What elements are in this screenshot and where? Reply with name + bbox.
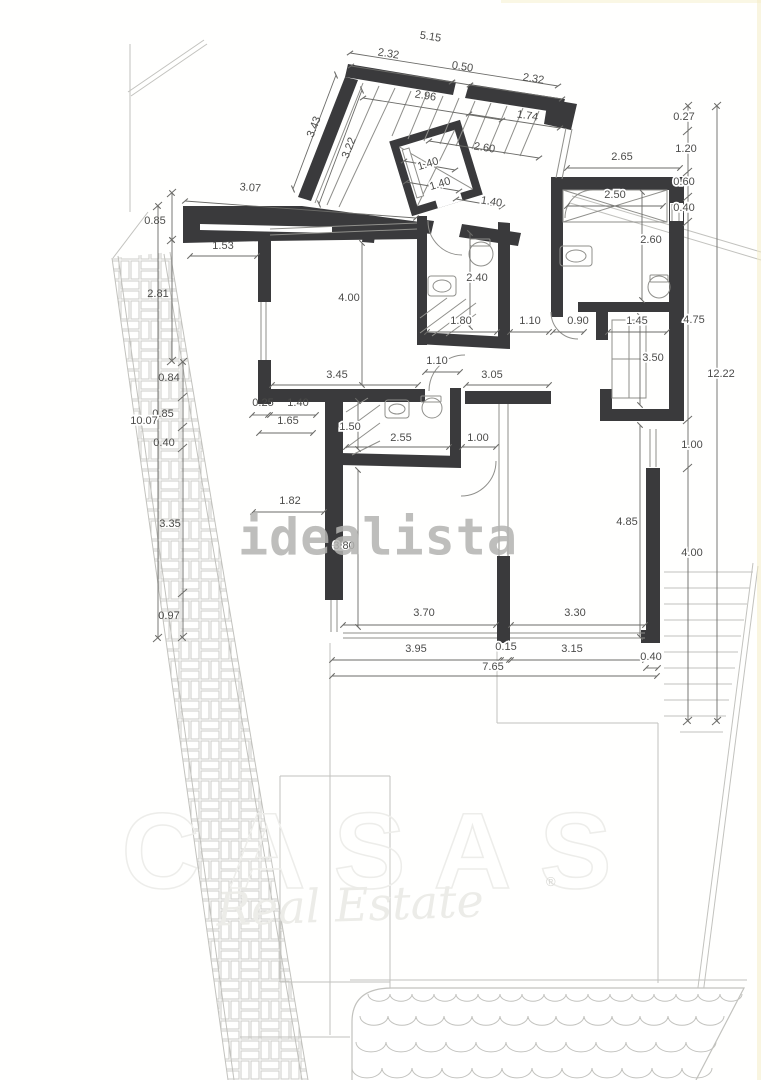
dim-label: 2.60 <box>473 140 496 155</box>
wall <box>450 388 461 462</box>
wall <box>551 190 563 317</box>
dim-label: 5.15 <box>419 29 442 44</box>
dim-label: 10.07 <box>130 415 158 427</box>
dim-label: 2.50 <box>604 189 625 201</box>
page-edge-tint <box>757 0 761 1080</box>
dim-label: 2.55 <box>390 432 411 444</box>
dim-label: 1.40 <box>480 194 503 209</box>
dim-label: 3.43 <box>305 115 324 139</box>
fixture <box>428 276 456 296</box>
chain-tick <box>683 416 692 424</box>
floor-plan-page: 5.152.320.502.322.961.742.603.433.221.40… <box>0 0 761 1080</box>
wall <box>465 391 551 404</box>
site-line <box>131 44 207 96</box>
wall <box>641 468 660 643</box>
dim-label: 2.32 <box>522 71 545 86</box>
chain-tick <box>683 717 692 725</box>
wall <box>498 222 510 340</box>
dim-label: 0.90 <box>567 315 588 327</box>
dim-label: 0.97 <box>158 610 179 622</box>
detail-line <box>562 129 572 179</box>
dim-label: 0.25 <box>252 397 273 409</box>
wall <box>578 302 669 312</box>
chain-tick <box>683 464 692 472</box>
sink-basin <box>433 280 451 292</box>
page-edge-tint-top <box>501 0 761 3</box>
idealista-watermark: idealista <box>238 507 518 566</box>
sink-basin <box>389 404 405 414</box>
dim-label: 2.65 <box>611 151 632 163</box>
dim-label: 1.10 <box>519 315 540 327</box>
dim-label: 0.84 <box>158 372 179 384</box>
chain-tick <box>683 218 692 226</box>
dim-label: 1.80 <box>450 315 471 327</box>
dim-label: 0.60 <box>673 176 694 188</box>
chain-tick <box>712 102 721 110</box>
dim-label: 3.22 <box>340 136 359 160</box>
dim-label: 0.27 <box>673 111 694 123</box>
wall <box>417 332 510 349</box>
dim-label: 1.00 <box>681 439 702 451</box>
chain-tick <box>683 127 692 135</box>
dim-label: 3.70 <box>413 607 434 619</box>
dim-label: 1.10 <box>426 355 447 367</box>
dim-label: 7.65 <box>482 661 503 673</box>
dim-label: 2.32 <box>377 46 400 61</box>
toilet <box>648 276 670 298</box>
wall <box>596 312 608 340</box>
chain-tick <box>683 102 692 110</box>
dim-label: 3.07 <box>239 181 261 195</box>
dim-label: 1.53 <box>212 240 233 252</box>
dim-label: 2.60 <box>640 234 661 246</box>
dim-label: 4.75 <box>683 314 704 326</box>
wall <box>544 99 577 130</box>
wall <box>417 216 427 345</box>
chain-tick <box>712 717 721 725</box>
dim-label: 2.40 <box>466 272 487 284</box>
dim-label: 3.50 <box>642 352 663 364</box>
dim-label: 4.85 <box>616 516 637 528</box>
dim-label: 4.00 <box>681 547 702 559</box>
detail-line <box>392 91 411 136</box>
dim-label: 0.40 <box>153 437 174 449</box>
chain-tick <box>153 634 162 642</box>
dim-label: 1.50 <box>339 421 360 433</box>
sink-basin <box>566 250 586 262</box>
dim-label: 0.50 <box>451 59 474 74</box>
detail-line <box>352 441 380 455</box>
wall <box>669 190 684 421</box>
dim-label: 3.15 <box>561 643 582 655</box>
dim-label: 0.15 <box>495 641 516 653</box>
dim-label: 0.40 <box>673 202 694 214</box>
dim-label: 3.95 <box>405 643 426 655</box>
dim-label: 1.65 <box>277 415 298 427</box>
site-line <box>113 212 148 258</box>
chain-tick <box>167 236 176 244</box>
chain-tick <box>683 168 692 176</box>
dim-label: 4.00 <box>338 292 359 304</box>
site-line <box>128 40 204 92</box>
dim-label: 3.35 <box>159 518 180 530</box>
dim-label: 3.05 <box>481 369 502 381</box>
chain-tick <box>167 189 176 197</box>
detail-line <box>556 128 566 178</box>
dim-label: 3.45 <box>326 369 347 381</box>
dim-label: 0.85 <box>144 215 165 227</box>
dim-label: 2.96 <box>414 88 437 103</box>
chain-tick <box>153 202 162 210</box>
chain-tick <box>683 193 692 201</box>
door-swing <box>428 221 462 255</box>
dim-label: 1.45 <box>626 315 647 327</box>
dim-label: 1.40 <box>287 397 308 409</box>
elevator <box>394 125 479 215</box>
toilet <box>422 398 442 418</box>
fixture <box>560 246 592 266</box>
dim-label: 1.82 <box>279 495 300 507</box>
dim-label: 2.81 <box>147 288 168 300</box>
dim-label: 1.00 <box>467 432 488 444</box>
pool-outline <box>352 988 744 1080</box>
dim-label: 12.22 <box>707 368 735 380</box>
wall <box>340 453 461 468</box>
dim-label: 0.40 <box>640 651 661 663</box>
dim-label: 1.20 <box>675 143 696 155</box>
door-swing <box>461 461 496 496</box>
dim-label: 3.30 <box>564 607 585 619</box>
wall <box>258 238 271 302</box>
wall <box>497 556 510 643</box>
